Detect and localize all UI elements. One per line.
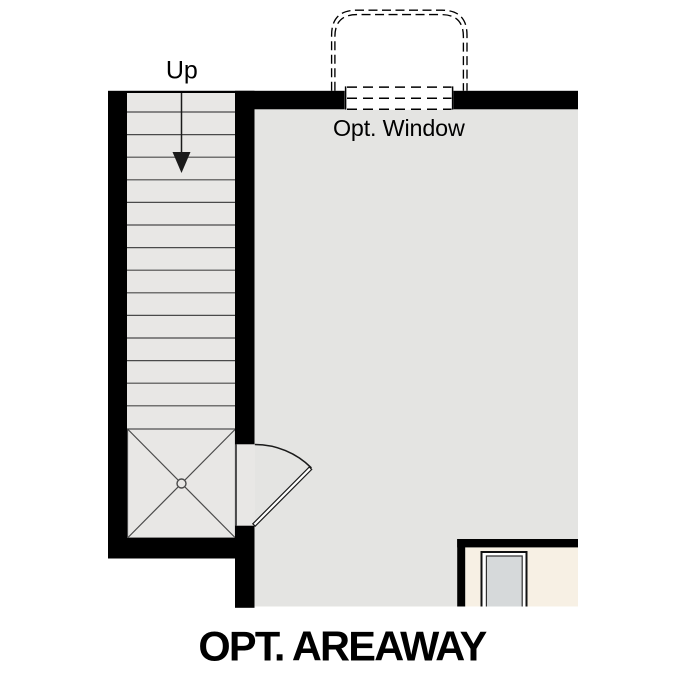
svg-text:OPT. AREAWAY: OPT. AREAWAY (198, 623, 487, 670)
svg-text:Up: Up (166, 57, 198, 85)
svg-text:Opt. Window: Opt. Window (333, 115, 465, 141)
